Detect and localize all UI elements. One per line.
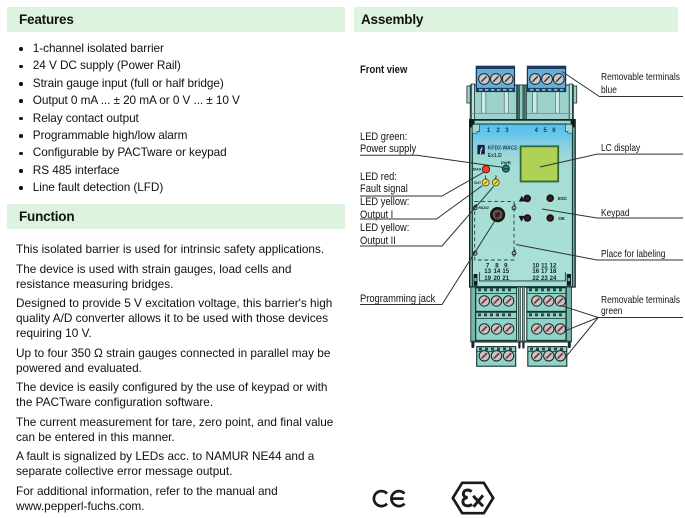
svg-text:ESC: ESC — [558, 196, 568, 201]
svg-text:DIAG: DIAG — [473, 167, 482, 171]
svg-text:OK: OK — [558, 216, 565, 221]
svg-text:KFD2-WAC2-: KFD2-WAC2- — [488, 146, 519, 152]
svg-text:OUT: OUT — [474, 181, 482, 185]
svg-text:PWR: PWR — [501, 161, 511, 166]
svg-text:RS232: RS232 — [479, 206, 489, 210]
svg-text:Ex1.D: Ex1.D — [488, 153, 502, 159]
